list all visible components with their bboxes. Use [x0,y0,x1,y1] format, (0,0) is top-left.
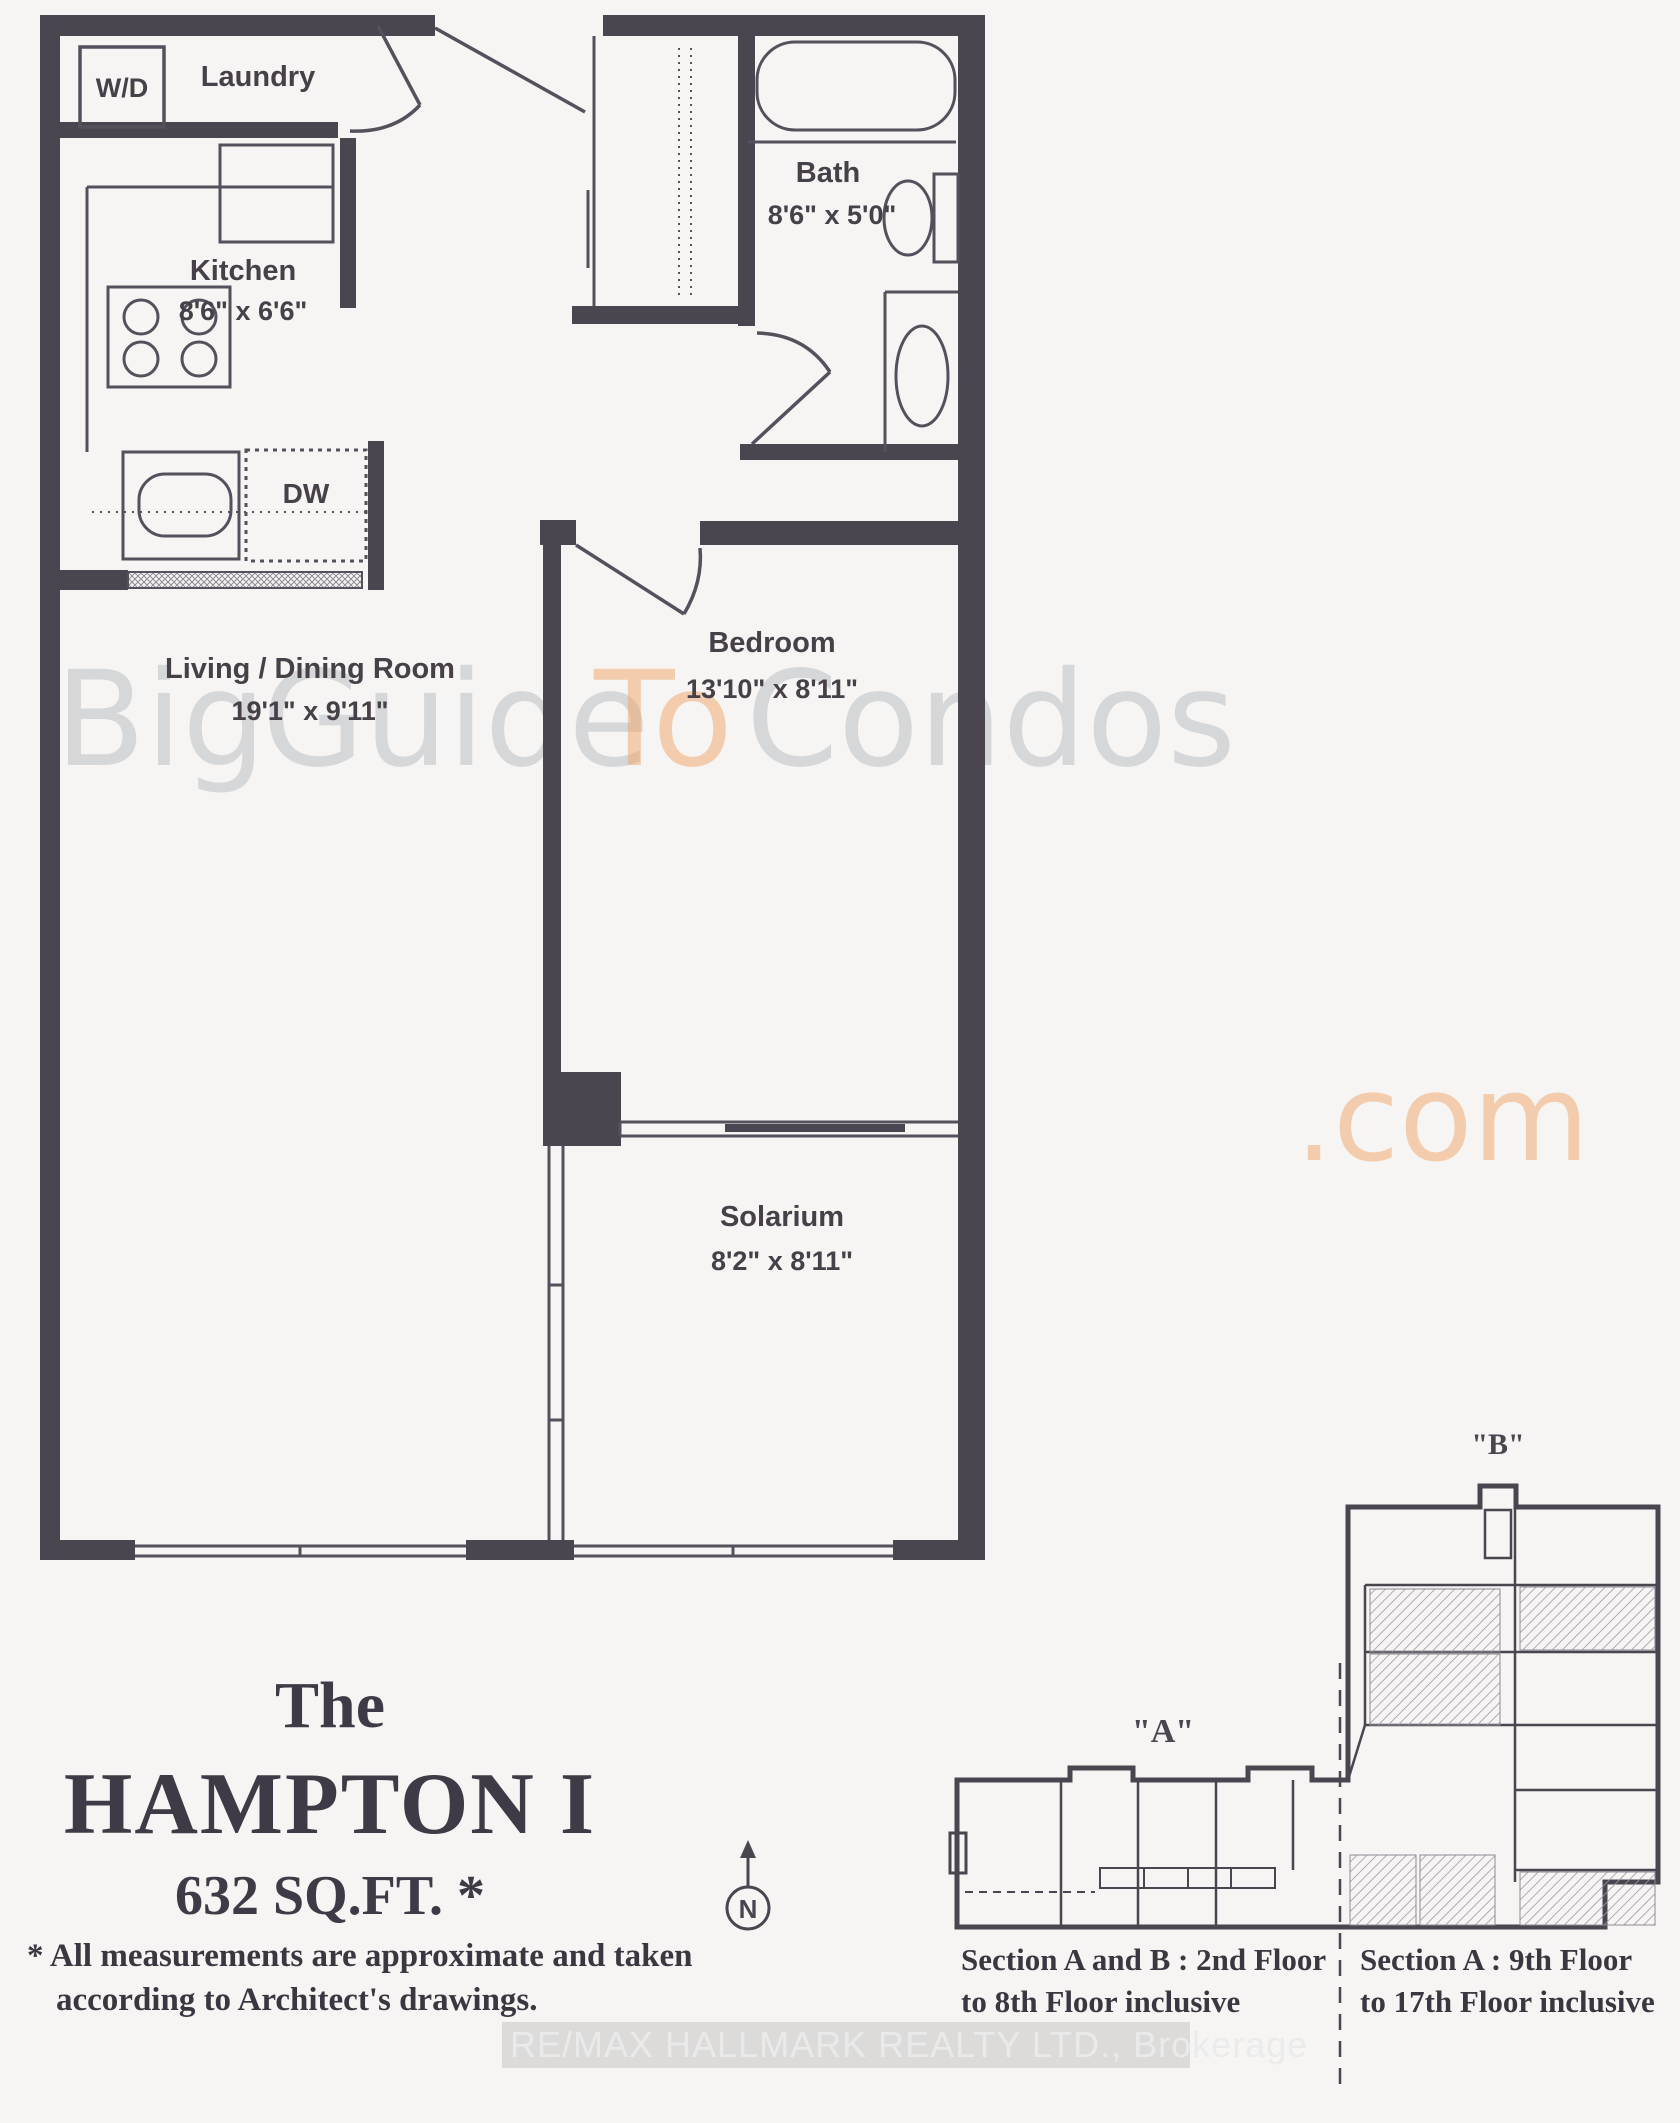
watermark-dotcom: .com [1295,1050,1589,1189]
wall-column-solarium [543,1072,621,1146]
bedroom-dims: 13'10" x 8'11" [686,674,858,704]
footnote-line2: according to Architect's drawings. [56,1982,538,2018]
kitchen-passthrough-hatch [128,572,362,588]
wall-right-outer [958,15,985,1560]
wall-laundry-bottom [60,122,338,138]
caption-left-line1: Section A and B : 2nd Floor [961,1942,1326,1977]
keyplan-label-b: "B" [1471,1428,1524,1461]
title-prefix: The [275,1669,385,1742]
bedroom-label: Bedroom [708,627,835,659]
title-name: HAMPTON I [64,1756,596,1853]
wall-closet-right [738,36,755,326]
wall-living-bedroom-divider [543,521,561,1072]
footnote-line1: * All measurements are approximate and t… [27,1938,693,1974]
keyplan-label-a: "A" [1132,1713,1194,1750]
brokerage-text: RE/MAX HALLMARK REALTY LTD., Brokerage [510,2024,1308,2065]
floorplan-drawing: Big Guide To Condos .com [0,0,1680,2123]
wall-top-left [40,15,435,36]
watermark-condos: Condos [746,643,1236,797]
caption-left-line2: to 8th Floor inclusive [961,1984,1240,2019]
watermark-to: To [593,643,733,797]
living-dims: 19'1" x 9'11" [231,696,388,726]
wall-bottom-seg3 [893,1540,985,1560]
solarium-label: Solarium [720,1201,844,1233]
north-label: N [739,1894,758,1924]
bath-label: Bath [796,157,860,189]
wall-top-right [603,15,985,36]
floorplan-page: Big Guide To Condos .com [0,0,1680,2123]
caption-right-line2: to 17th Floor inclusive [1360,1984,1655,2019]
washer-dryer-label: W/D [96,73,148,103]
wall-kitchen-stub [60,570,128,590]
dishwasher-label: DW [283,478,330,509]
kitchen-label: Kitchen [190,255,296,287]
solarium-dims: 8'2" x 8'11" [711,1246,853,1276]
wall-kitchen-jamb [368,441,384,590]
wall-bottom-seg2 [466,1540,574,1560]
caption-right-line1: Section A : 9th Floor [1360,1942,1632,1977]
kitchen-dims: 8'6" x 6'6" [179,296,308,326]
wall-left-outer [40,15,60,1560]
wall-kitchen-right [340,138,356,308]
wall-bath-bottom [740,444,958,460]
wall-bedroom-top [700,521,958,545]
title-area: 632 SQ.FT. * [175,1865,485,1927]
living-label: Living / Dining Room [165,653,455,685]
laundry-label: Laundry [201,61,315,93]
brokerage-watermark: RE/MAX HALLMARK REALTY LTD., Brokerage [502,2022,1308,2068]
wall-bottom-seg1 [40,1540,135,1560]
bath-dims: 8'6" x 5'0" [768,200,897,230]
wall-closet-bottom [572,306,755,324]
